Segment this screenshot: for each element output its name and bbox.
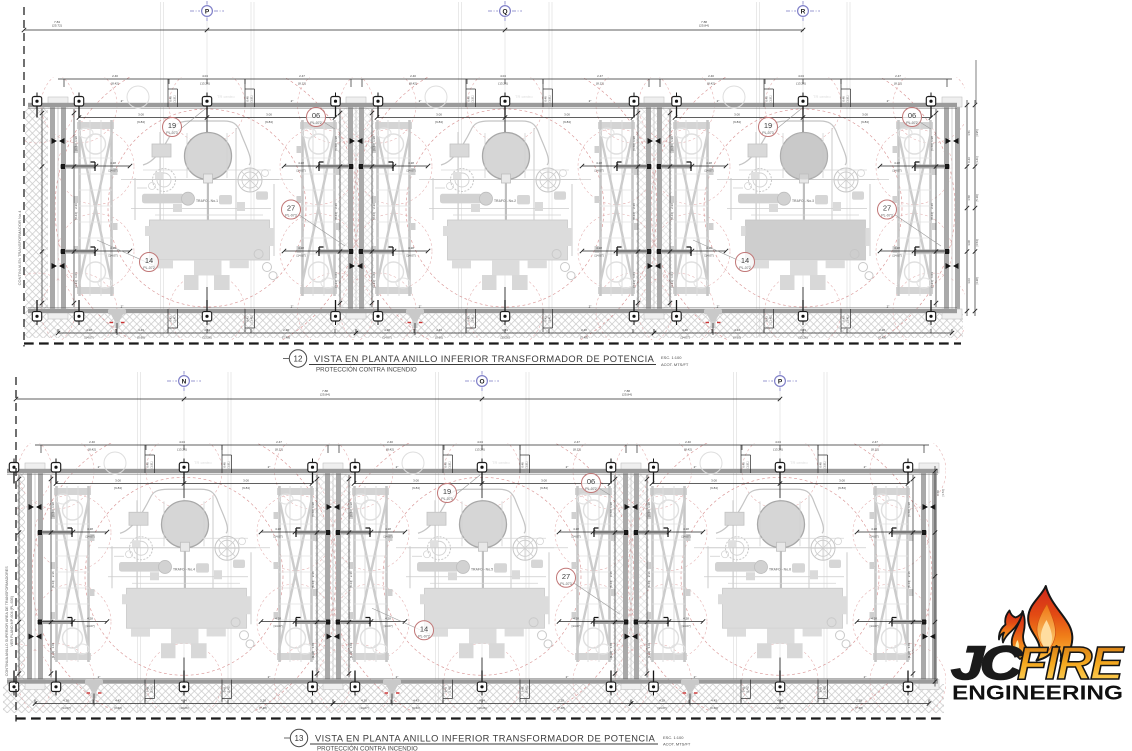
svg-text:[7.48]: [7.48] xyxy=(259,706,266,710)
svg-text:[8.42]: [8.42] xyxy=(409,82,417,86)
svg-text:[8.44]: [8.44] xyxy=(907,580,911,587)
svg-text:ENGINEERING: ENGINEERING xyxy=(952,683,1123,705)
svg-text:4.43: 4.43 xyxy=(138,328,144,332)
svg-text:4.04: 4.04 xyxy=(204,328,210,332)
svg-text:ACOT. MTS/FT: ACOT. MTS/FT xyxy=(661,362,689,367)
svg-text:2": 2" xyxy=(694,675,697,679)
svg-text:[14.07]: [14.07] xyxy=(384,624,393,628)
svg-text:2.36: 2.36 xyxy=(670,203,674,209)
svg-text:1.01: 1.01 xyxy=(74,272,78,278)
svg-text:4.28: 4.28 xyxy=(871,527,877,531)
svg-text:3.00: 3.00 xyxy=(266,113,272,117)
svg-text:[1.51]: [1.51] xyxy=(746,461,750,468)
svg-text:[14.07]: [14.07] xyxy=(595,254,604,258)
svg-text:0.43: 0.43 xyxy=(146,686,150,692)
svg-text:4.04: 4.04 xyxy=(179,440,185,444)
svg-text:R: R xyxy=(801,8,806,15)
svg-text:[14.07]: [14.07] xyxy=(86,535,95,539)
svg-text:[8.12]: [8.12] xyxy=(871,448,879,452)
svg-text:2": 2" xyxy=(589,99,592,103)
svg-text:2": 2" xyxy=(291,305,294,309)
svg-text:0.46: 0.46 xyxy=(146,462,150,468)
svg-text:[8.12]: [8.12] xyxy=(894,82,902,86)
svg-text:1.98: 1.98 xyxy=(632,136,636,142)
svg-text:0.46: 0.46 xyxy=(223,462,227,468)
svg-text:4.04: 4.04 xyxy=(477,440,483,444)
svg-text:[3.31]: [3.31] xyxy=(647,651,651,658)
svg-text:[6.50]: [6.50] xyxy=(74,143,78,150)
svg-text:VER PLANO MP-604 (PL-636): VER PLANO MP-604 (PL-636) xyxy=(10,596,14,646)
svg-text:[1.41]: [1.41] xyxy=(823,686,827,693)
svg-text:0.46: 0.46 xyxy=(544,96,548,102)
svg-text:[0.60]: [0.60] xyxy=(733,336,740,340)
svg-text:[14.07]: [14.07] xyxy=(705,254,714,258)
svg-text:[6.50]: [6.50] xyxy=(670,143,674,150)
svg-text:4.28: 4.28 xyxy=(361,699,367,703)
svg-text:[3.31]: [3.31] xyxy=(930,280,934,287)
svg-text:0.43: 0.43 xyxy=(246,316,250,322)
svg-text:4.28: 4.28 xyxy=(408,161,414,165)
svg-text:2.28: 2.28 xyxy=(581,328,587,332)
svg-text:PL-072: PL-072 xyxy=(310,121,322,125)
svg-text:[3.31]: [3.31] xyxy=(632,280,636,287)
svg-text:0.43: 0.43 xyxy=(544,316,548,322)
svg-text:2": 2" xyxy=(396,465,399,469)
svg-text:[8.42]: [8.42] xyxy=(386,448,394,452)
svg-text:3.00: 3.00 xyxy=(862,113,868,117)
svg-text:1.58: 1.58 xyxy=(967,195,971,201)
svg-text:[8.42]: [8.42] xyxy=(111,82,119,86)
svg-text:1.01: 1.01 xyxy=(632,272,636,278)
svg-text:4.28: 4.28 xyxy=(385,617,391,621)
svg-text:0.46: 0.46 xyxy=(742,462,746,468)
svg-text:TRAFO - No.5: TRAFO - No.5 xyxy=(471,567,493,571)
svg-text:2.36: 2.36 xyxy=(74,203,78,209)
svg-text:3.00: 3.00 xyxy=(541,479,547,483)
svg-text:2": 2" xyxy=(419,305,422,309)
svg-text:[14.07]: [14.07] xyxy=(407,254,416,258)
svg-text:19: 19 xyxy=(168,121,176,130)
svg-text:27: 27 xyxy=(287,204,295,213)
svg-text:[8.44]: [8.44] xyxy=(930,212,934,219)
svg-text:1.98: 1.98 xyxy=(51,502,55,508)
svg-text:0.46: 0.46 xyxy=(169,96,173,102)
svg-text:2.47: 2.47 xyxy=(895,74,901,78)
svg-text:2": 2" xyxy=(589,305,592,309)
svg-text:TR centro: TR centro xyxy=(515,94,533,99)
svg-text:2.36: 2.36 xyxy=(311,571,315,577)
svg-text:N: N xyxy=(182,378,187,385)
svg-text:1.01: 1.01 xyxy=(609,642,613,648)
svg-text:1.01: 1.01 xyxy=(670,272,674,278)
svg-text:0.46: 0.46 xyxy=(765,96,769,102)
svg-text:[13.26]: [13.26] xyxy=(501,336,510,340)
svg-text:0.43: 0.43 xyxy=(842,316,846,322)
svg-text:4.43: 4.43 xyxy=(436,328,442,332)
svg-text:[13.26]: [13.26] xyxy=(773,448,782,452)
svg-text:[9.84]: [9.84] xyxy=(435,120,443,124)
svg-text:4.04: 4.04 xyxy=(181,699,187,703)
svg-text:[6.50]: [6.50] xyxy=(372,143,376,150)
svg-text:[14.07]: [14.07] xyxy=(85,336,94,340)
svg-text:[3.31]: [3.31] xyxy=(349,651,353,658)
svg-text:PL-072: PL-072 xyxy=(418,634,430,638)
svg-text:O: O xyxy=(479,378,484,385)
svg-text:4.28: 4.28 xyxy=(894,161,900,165)
svg-text:4.04: 4.04 xyxy=(798,74,804,78)
svg-text:4.43: 4.43 xyxy=(734,328,740,332)
svg-text:[7.48]: [7.48] xyxy=(282,336,289,340)
svg-text:0.46: 0.46 xyxy=(842,96,846,102)
svg-text:1.01: 1.01 xyxy=(349,642,353,648)
svg-text:4.43: 4.43 xyxy=(711,699,717,703)
svg-text:4.28: 4.28 xyxy=(682,328,688,332)
svg-text:12: 12 xyxy=(294,355,303,364)
svg-text:[8.44]: [8.44] xyxy=(334,212,338,219)
svg-text:[14.07]: [14.07] xyxy=(682,624,691,628)
svg-text:2": 2" xyxy=(98,465,101,469)
svg-text:3.00: 3.00 xyxy=(711,479,717,483)
svg-text:3.00: 3.00 xyxy=(115,479,121,483)
svg-text:[3.31]: [3.31] xyxy=(51,651,55,658)
svg-text:[1.51]: [1.51] xyxy=(525,461,529,468)
svg-text:4.04: 4.04 xyxy=(502,328,508,332)
svg-text:TRAFO - No.3: TRAFO - No.3 xyxy=(792,199,814,203)
svg-text:2.40: 2.40 xyxy=(89,440,95,444)
svg-text:[13.26]: [13.26] xyxy=(180,706,189,710)
svg-text:[14.07]: [14.07] xyxy=(62,706,71,710)
svg-text:[3.38]: [3.38] xyxy=(975,277,979,284)
svg-text:[1.51]: [1.51] xyxy=(471,95,475,102)
svg-text:[6.50]: [6.50] xyxy=(930,143,934,150)
svg-text:4.43: 4.43 xyxy=(115,699,121,703)
svg-text:4.28: 4.28 xyxy=(87,527,93,531)
svg-text:JC: JC xyxy=(951,636,1024,689)
svg-text:TR centro: TR centro xyxy=(194,460,212,465)
svg-text:[0.60]: [0.60] xyxy=(114,706,121,710)
svg-text:[13.26]: [13.26] xyxy=(478,706,487,710)
svg-text:2.47: 2.47 xyxy=(872,440,878,444)
svg-text:0.43: 0.43 xyxy=(467,316,471,322)
svg-text:2.47: 2.47 xyxy=(276,440,282,444)
svg-text:CONTINUA ANILLO SUPERIOR AREA: CONTINUA ANILLO SUPERIOR AREA DE TRANSFO… xyxy=(5,566,9,677)
svg-text:[3.31]: [3.31] xyxy=(609,651,613,658)
svg-text:[8.42]: [8.42] xyxy=(684,448,692,452)
svg-text:2.36: 2.36 xyxy=(372,203,376,209)
svg-text:06: 06 xyxy=(908,111,916,120)
svg-text:[13.26]: [13.26] xyxy=(796,82,805,86)
svg-text:[14.07]: [14.07] xyxy=(384,535,393,539)
svg-text:[8.44]: [8.44] xyxy=(670,212,674,219)
svg-text:2": 2" xyxy=(864,465,867,469)
svg-text:[9.84]: [9.84] xyxy=(540,486,548,490)
svg-text:[9.84]: [9.84] xyxy=(242,486,250,490)
svg-text:4.28: 4.28 xyxy=(275,527,281,531)
svg-text:4.28: 4.28 xyxy=(86,328,92,332)
svg-text:4.28: 4.28 xyxy=(871,617,877,621)
svg-text:PL-073: PL-073 xyxy=(560,582,572,586)
svg-text:[1.41]: [1.41] xyxy=(448,686,452,693)
svg-text:2.36: 2.36 xyxy=(907,571,911,577)
svg-text:4.28: 4.28 xyxy=(683,527,689,531)
svg-text:[1.41]: [1.41] xyxy=(525,686,529,693)
svg-text:[0.60]: [0.60] xyxy=(412,706,419,710)
svg-text:0.58: 0.58 xyxy=(936,490,940,496)
svg-text:PL-073: PL-073 xyxy=(285,214,297,218)
svg-text:[1.41]: [1.41] xyxy=(150,686,154,693)
svg-text:3.00: 3.00 xyxy=(243,479,249,483)
svg-text:2.47: 2.47 xyxy=(574,440,580,444)
svg-text:0.43: 0.43 xyxy=(742,686,746,692)
svg-text:2": 2" xyxy=(717,305,720,309)
svg-text:[8.44]: [8.44] xyxy=(74,212,78,219)
svg-text:TR centro: TR centro xyxy=(217,94,235,99)
svg-text:[1.51]: [1.51] xyxy=(846,95,850,102)
svg-text:[13.26]: [13.26] xyxy=(203,336,212,340)
svg-text:Q: Q xyxy=(502,8,507,15)
svg-text:[0.60]: [0.60] xyxy=(137,336,144,340)
svg-text:3.00: 3.00 xyxy=(839,479,845,483)
svg-text:[3.31]: [3.31] xyxy=(74,280,78,287)
svg-text:[14.07]: [14.07] xyxy=(86,624,95,628)
svg-text:2.36: 2.36 xyxy=(609,571,613,577)
svg-text:3.00: 3.00 xyxy=(564,113,570,117)
svg-text:1.98: 1.98 xyxy=(647,502,651,508)
svg-text:4.04: 4.04 xyxy=(775,440,781,444)
svg-text:2.47: 2.47 xyxy=(597,74,603,78)
svg-text:[8.44]: [8.44] xyxy=(372,212,376,219)
svg-text:[1.51]: [1.51] xyxy=(150,461,154,468)
svg-text:[1.41]: [1.41] xyxy=(471,315,475,322)
svg-text:14: 14 xyxy=(420,624,428,633)
svg-text:[1.41]: [1.41] xyxy=(548,315,552,322)
svg-text:TR centro: TR centro xyxy=(813,94,831,99)
svg-text:[0.60]: [0.60] xyxy=(435,336,442,340)
svg-text:4.04: 4.04 xyxy=(500,74,506,78)
svg-text:[1.41]: [1.41] xyxy=(769,315,773,322)
svg-text:4.28: 4.28 xyxy=(659,699,665,703)
svg-text:[8.44]: [8.44] xyxy=(647,580,651,587)
svg-text:[13.26]: [13.26] xyxy=(177,448,186,452)
svg-text:[14.07]: [14.07] xyxy=(297,254,306,258)
svg-text:4.28: 4.28 xyxy=(275,617,281,621)
svg-text:0.43: 0.43 xyxy=(223,686,227,692)
svg-text:1.98: 1.98 xyxy=(349,502,353,508)
svg-text:4.28: 4.28 xyxy=(894,246,900,250)
svg-text:[9.84]: [9.84] xyxy=(861,120,869,124)
svg-text:[14.07]: [14.07] xyxy=(705,169,714,173)
svg-text:[9.84]: [9.84] xyxy=(412,486,420,490)
svg-text:0.43: 0.43 xyxy=(521,686,525,692)
svg-text:ESC. 1:100: ESC. 1:100 xyxy=(663,735,684,740)
svg-text:2": 2" xyxy=(717,99,720,103)
svg-text:[4.95]: [4.95] xyxy=(975,129,979,136)
svg-text:1.98: 1.98 xyxy=(930,136,934,142)
svg-text:[8.12]: [8.12] xyxy=(573,448,581,452)
svg-text:[9.84]: [9.84] xyxy=(733,120,741,124)
svg-text:[3.31]: [3.31] xyxy=(311,651,315,658)
svg-text:[14.07]: [14.07] xyxy=(681,336,690,340)
svg-text:2.47: 2.47 xyxy=(299,74,305,78)
svg-text:1.01: 1.01 xyxy=(930,272,934,278)
svg-text:[14.07]: [14.07] xyxy=(360,706,369,710)
svg-text:2.28: 2.28 xyxy=(283,328,289,332)
svg-text:4.28: 4.28 xyxy=(596,161,602,165)
svg-text:[1.73]: [1.73] xyxy=(941,489,945,496)
svg-text:[14.07]: [14.07] xyxy=(274,535,283,539)
svg-text:1.98: 1.98 xyxy=(311,502,315,508)
svg-text:[14.07]: [14.07] xyxy=(870,624,879,628)
svg-text:[6.50]: [6.50] xyxy=(334,143,338,150)
svg-text:[3.54]: [3.54] xyxy=(975,239,979,246)
svg-text:[9.84]: [9.84] xyxy=(114,486,122,490)
svg-text:[1.51]: [1.51] xyxy=(173,95,177,102)
svg-text:[1.41]: [1.41] xyxy=(746,686,750,693)
svg-text:4.28: 4.28 xyxy=(384,328,390,332)
svg-text:[8.12]: [8.12] xyxy=(596,82,604,86)
svg-text:1.98: 1.98 xyxy=(74,136,78,142)
svg-text:2": 2" xyxy=(268,675,271,679)
svg-text:PL-072: PL-072 xyxy=(739,266,751,270)
svg-text:4.28: 4.28 xyxy=(298,246,304,250)
svg-text:PL-073: PL-073 xyxy=(881,214,893,218)
svg-text:19: 19 xyxy=(764,121,772,130)
svg-text:2.40: 2.40 xyxy=(387,440,393,444)
svg-text:[14.07]: [14.07] xyxy=(383,336,392,340)
svg-text:PL-072: PL-072 xyxy=(585,487,597,491)
svg-text:2.36: 2.36 xyxy=(647,571,651,577)
svg-text:[14.07]: [14.07] xyxy=(109,254,118,258)
svg-text:14: 14 xyxy=(145,256,153,265)
svg-text:2": 2" xyxy=(566,465,569,469)
svg-text:2.28: 2.28 xyxy=(260,699,266,703)
svg-text:1.01: 1.01 xyxy=(372,272,376,278)
svg-text:2": 2" xyxy=(396,675,399,679)
svg-text:[14.07]: [14.07] xyxy=(572,624,581,628)
svg-text:2.36: 2.36 xyxy=(51,571,55,577)
svg-text:2.40: 2.40 xyxy=(112,74,118,78)
svg-text:1.01: 1.01 xyxy=(51,642,55,648)
svg-text:TR centro: TR centro xyxy=(790,460,808,465)
svg-text:4.28: 4.28 xyxy=(87,617,93,621)
svg-text:[14.07]: [14.07] xyxy=(893,254,902,258)
svg-text:2.40: 2.40 xyxy=(708,74,714,78)
svg-text:0.43: 0.43 xyxy=(169,316,173,322)
svg-text:[1.51]: [1.51] xyxy=(227,461,231,468)
svg-text:[1.41]: [1.41] xyxy=(975,156,979,163)
svg-text:1.51: 1.51 xyxy=(967,130,971,136)
svg-text:0.46: 0.46 xyxy=(246,96,250,102)
svg-text:PL-072: PL-072 xyxy=(906,121,918,125)
svg-text:4.43: 4.43 xyxy=(413,699,419,703)
svg-text:2.28: 2.28 xyxy=(856,699,862,703)
svg-text:[7.48]: [7.48] xyxy=(855,706,862,710)
svg-text:[9.84]: [9.84] xyxy=(563,120,571,124)
svg-text:4.28: 4.28 xyxy=(110,161,116,165)
svg-text:[1.51]: [1.51] xyxy=(448,461,452,468)
svg-text:[9.84]: [9.84] xyxy=(137,120,145,124)
svg-text:2": 2" xyxy=(864,675,867,679)
svg-text:3.00: 3.00 xyxy=(413,479,419,483)
svg-text:4.04: 4.04 xyxy=(479,699,485,703)
svg-text:19: 19 xyxy=(443,487,451,496)
svg-text:4.28: 4.28 xyxy=(385,527,391,531)
svg-text:2": 2" xyxy=(694,465,697,469)
svg-text:[13.26]: [13.26] xyxy=(799,336,808,340)
svg-text:2.40: 2.40 xyxy=(410,74,416,78)
svg-text:[1.51]: [1.51] xyxy=(548,95,552,102)
svg-text:4.28: 4.28 xyxy=(573,617,579,621)
svg-text:[5.19]: [5.19] xyxy=(975,194,979,201)
svg-text:FIRE: FIRE xyxy=(1017,637,1125,689)
svg-text:3.00: 3.00 xyxy=(734,113,740,117)
svg-text:PL-072: PL-072 xyxy=(143,266,155,270)
svg-text:[1.51]: [1.51] xyxy=(823,461,827,468)
svg-text:0.46: 0.46 xyxy=(819,462,823,468)
svg-text:3.00: 3.00 xyxy=(436,113,442,117)
svg-text:[3.31]: [3.31] xyxy=(670,280,674,287)
svg-text:[1.41]: [1.41] xyxy=(173,315,177,322)
svg-text:[1.41]: [1.41] xyxy=(846,315,850,322)
svg-text:2.36: 2.36 xyxy=(632,203,636,209)
svg-text:[9.84]: [9.84] xyxy=(710,486,718,490)
svg-text:13: 13 xyxy=(295,734,304,743)
svg-text:06: 06 xyxy=(312,111,320,120)
svg-text:2": 2" xyxy=(566,675,569,679)
svg-text:[1.51]: [1.51] xyxy=(769,95,773,102)
svg-text:1.98: 1.98 xyxy=(334,136,338,142)
svg-text:2": 2" xyxy=(419,99,422,103)
svg-text:PROTECCIÓN CONTRA INCENDIO: PROTECCIÓN CONTRA INCENDIO xyxy=(316,367,417,374)
svg-text:06: 06 xyxy=(587,477,595,486)
svg-text:0.46: 0.46 xyxy=(521,462,525,468)
svg-text:[14.07]: [14.07] xyxy=(297,169,306,173)
svg-text:[8.12]: [8.12] xyxy=(298,82,306,86)
svg-text:2": 2" xyxy=(887,305,890,309)
svg-text:[8.44]: [8.44] xyxy=(632,212,636,219)
svg-text:[7.48]: [7.48] xyxy=(557,706,564,710)
svg-text:4.04: 4.04 xyxy=(777,699,783,703)
svg-text:TRAFO - No.4: TRAFO - No.4 xyxy=(173,567,195,571)
svg-text:[8.44]: [8.44] xyxy=(51,580,55,587)
svg-text:ACOT. MTS/FT: ACOT. MTS/FT xyxy=(663,742,691,747)
svg-text:2": 2" xyxy=(98,675,101,679)
svg-text:TRAFO - No.2: TRAFO - No.2 xyxy=(494,199,516,203)
svg-text:P: P xyxy=(778,378,783,385)
svg-text:[8.12]: [8.12] xyxy=(275,448,283,452)
svg-text:[3.31]: [3.31] xyxy=(907,651,911,658)
svg-text:[1.51]: [1.51] xyxy=(250,95,254,102)
svg-text:TR centro: TR centro xyxy=(492,460,510,465)
svg-text:[3.31]: [3.31] xyxy=(372,280,376,287)
svg-text:2.28: 2.28 xyxy=(879,328,885,332)
svg-text:0.46: 0.46 xyxy=(467,96,471,102)
svg-text:[6.50]: [6.50] xyxy=(609,509,613,516)
svg-text:[1.41]: [1.41] xyxy=(250,315,254,322)
svg-text:[8.44]: [8.44] xyxy=(609,580,613,587)
svg-text:[0.60]: [0.60] xyxy=(710,706,717,710)
svg-text:[6.50]: [6.50] xyxy=(51,509,55,516)
svg-text:1.98: 1.98 xyxy=(372,136,376,142)
svg-text:27: 27 xyxy=(883,204,891,213)
svg-text:[6.50]: [6.50] xyxy=(311,509,315,516)
svg-text:1.98: 1.98 xyxy=(609,502,613,508)
svg-text:TRAFO - No.6: TRAFO - No.6 xyxy=(769,567,791,571)
svg-text:0.43: 0.43 xyxy=(444,686,448,692)
svg-text:[8.42]: [8.42] xyxy=(707,82,715,86)
svg-text:[7.48]: [7.48] xyxy=(878,336,885,340)
svg-text:4.28: 4.28 xyxy=(63,699,69,703)
